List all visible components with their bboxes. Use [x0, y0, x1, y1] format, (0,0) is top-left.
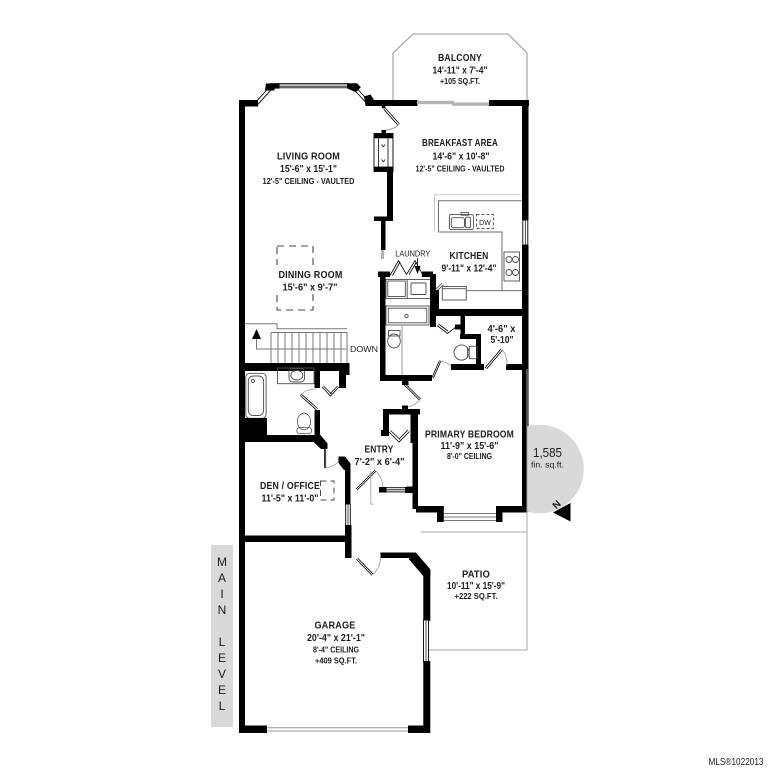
svg-text:N: N [218, 603, 227, 617]
svg-text:LAUNDRY: LAUNDRY [395, 249, 430, 259]
svg-text:4'-6" x: 4'-6" x [488, 324, 516, 335]
svg-text:L: L [219, 699, 226, 713]
svg-text:KITCHEN: KITCHEN [450, 251, 489, 262]
svg-text:+409 SQ.FT.: +409 SQ.FT. [315, 657, 357, 666]
svg-text:11'-9" x 15'-6": 11'-9" x 15'-6" [441, 441, 499, 452]
svg-text:DEN / OFFICE: DEN / OFFICE [260, 481, 320, 492]
svg-text:11'-5" x 11'-0": 11'-5" x 11'-0" [262, 494, 319, 505]
svg-text:+105 SQ.FT.: +105 SQ.FT. [440, 77, 480, 86]
svg-text:V: V [218, 667, 226, 681]
svg-text:BREAKFAST AREA: BREAKFAST AREA [422, 138, 498, 149]
svg-text:fin. sq.ft.: fin. sq.ft. [531, 460, 564, 470]
svg-text:8'-4" CEILING: 8'-4" CEILING [313, 646, 359, 655]
svg-text:E: E [218, 683, 226, 697]
svg-text:ENTRY: ENTRY [365, 445, 394, 456]
svg-text:M: M [217, 555, 227, 569]
svg-text:1,585: 1,585 [533, 445, 562, 460]
svg-text:A: A [218, 571, 226, 585]
svg-text:9'-11" x 12'-4": 9'-11" x 12'-4" [442, 264, 497, 275]
svg-text:GARAGE: GARAGE [315, 621, 356, 632]
svg-text:BALCONY: BALCONY [438, 53, 482, 64]
svg-text:14'-6" x 10'-8": 14'-6" x 10'-8" [433, 152, 490, 163]
svg-text:L: L [219, 635, 226, 649]
svg-text:15'-6" x 15'-1": 15'-6" x 15'-1" [280, 164, 337, 175]
svg-text:10'-11" x 15'-9": 10'-11" x 15'-9" [447, 581, 505, 592]
svg-text:12'-5" CEILING - VAULTED: 12'-5" CEILING - VAULTED [263, 177, 355, 186]
svg-text:DINING ROOM: DINING ROOM [279, 270, 343, 281]
svg-text:I: I [220, 587, 223, 601]
svg-text:12'-5" CEILING - VAULTED: 12'-5" CEILING - VAULTED [416, 165, 505, 174]
svg-text:8'-0" CEILING: 8'-0" CEILING [447, 452, 492, 461]
svg-text:DW: DW [479, 220, 491, 227]
svg-text:14'-11" x 7'-4": 14'-11" x 7'-4" [433, 66, 488, 77]
svg-text:PRIMARY BEDROOM: PRIMARY BEDROOM [425, 430, 514, 441]
svg-text:20'-4" x 21'-1": 20'-4" x 21'-1" [307, 633, 365, 644]
svg-text:+222 SQ.FT.: +222 SQ.FT. [455, 592, 498, 601]
svg-text:LIVING ROOM: LIVING ROOM [277, 152, 340, 163]
svg-text:15'-6" x 9'-7": 15'-6" x 9'-7" [283, 283, 338, 294]
svg-text:7'-2" x 6'-4": 7'-2" x 6'-4" [355, 457, 405, 468]
svg-text:E: E [218, 651, 226, 665]
svg-text:MLS®1022013: MLS®1022013 [709, 757, 764, 768]
svg-text:5'-10": 5'-10" [491, 335, 514, 346]
svg-text:PATIO: PATIO [462, 570, 490, 581]
svg-text:DOWN: DOWN [350, 344, 378, 354]
